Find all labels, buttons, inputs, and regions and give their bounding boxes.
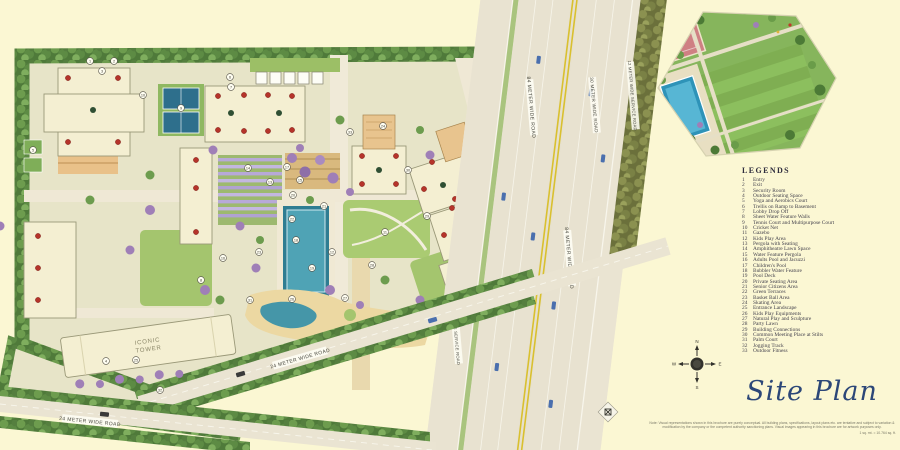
plan-marker: 12 xyxy=(329,249,336,256)
svg-text:2: 2 xyxy=(113,59,115,63)
plan-marker: 18 xyxy=(293,237,300,244)
plan-marker: 16 xyxy=(220,255,227,262)
plan-marker: 29 xyxy=(424,213,431,220)
trellis-row xyxy=(256,72,323,84)
svg-text:11: 11 xyxy=(383,230,387,234)
site-plan-canvas: 84 METER WIDE ROAD 84 METER WIDE ROAD 30… xyxy=(0,0,671,450)
svg-text:33: 33 xyxy=(348,130,352,134)
svg-text:17: 17 xyxy=(285,165,289,169)
plan-marker: 7 xyxy=(228,84,235,91)
svg-text:1: 1 xyxy=(89,59,91,63)
plan-marker: 32 xyxy=(157,387,164,394)
svg-text:22: 22 xyxy=(290,217,294,221)
plan-marker: 23 xyxy=(256,249,263,256)
plan-marker: 22 xyxy=(289,216,296,223)
svg-text:16: 16 xyxy=(221,256,225,260)
legend-item-number: 33 xyxy=(742,349,753,354)
svg-text:4: 4 xyxy=(105,359,107,363)
legend-title: LEGENDS xyxy=(742,166,898,175)
svg-text:29: 29 xyxy=(425,214,429,218)
plan-marker: 30 xyxy=(405,167,412,174)
plan-marker: 19 xyxy=(309,265,316,272)
compass-icon: N S W E xyxy=(672,339,722,390)
svg-text:27: 27 xyxy=(343,296,347,300)
unit-conversion: 1 sq. mt. = 10.764 sq. ft. xyxy=(648,431,896,435)
plan-marker: 26 xyxy=(289,296,296,303)
plan-marker: 15 xyxy=(297,177,304,184)
disclaimer-note: Note: Visual representations shown in th… xyxy=(648,421,896,430)
plan-marker: 2 xyxy=(111,58,118,65)
svg-text:31: 31 xyxy=(248,298,252,302)
plan-marker: 33 xyxy=(347,129,354,136)
plan-marker: 9 xyxy=(178,105,185,112)
legend-panel: LEGENDS 1Entry 2Exit 3Security Room 4Out… xyxy=(742,166,898,354)
svg-text:15: 15 xyxy=(298,178,302,182)
legend-item-label: Outdoor Fitness xyxy=(753,349,788,354)
plan-marker: 14 xyxy=(245,165,252,172)
water-feature-pergola xyxy=(285,153,340,189)
plan-marker: 31 xyxy=(247,297,254,304)
legend-item: 33Outdoor Fitness xyxy=(742,349,898,354)
plan-marker: 6 xyxy=(227,74,234,81)
compass-east-label: E xyxy=(718,362,721,367)
brochure-page: 84 METER WIDE ROAD 84 METER WIDE ROAD 30… xyxy=(0,0,900,450)
svg-text:7: 7 xyxy=(230,85,232,89)
compass-north-label: N xyxy=(695,339,698,344)
svg-text:6: 6 xyxy=(229,75,231,79)
svg-text:32: 32 xyxy=(158,388,162,392)
plan-marker: 11 xyxy=(382,229,389,236)
aerial-view-hexagon xyxy=(633,0,845,184)
svg-text:18: 18 xyxy=(294,238,298,242)
plan-marker: 17 xyxy=(284,164,291,171)
svg-text:13: 13 xyxy=(268,180,272,184)
plan-marker: 10 xyxy=(140,92,147,99)
compass-west-label: W xyxy=(672,362,677,367)
svg-text:25: 25 xyxy=(134,358,138,362)
svg-text:28: 28 xyxy=(370,263,374,267)
plan-marker: 3 xyxy=(99,68,106,75)
compass-south-label: S xyxy=(695,385,698,390)
plan-marker: 24 xyxy=(380,123,387,130)
legend-list: 1Entry 2Exit 3Security Room 4Outdoor Sea… xyxy=(742,178,898,354)
plan-marker: 5 xyxy=(30,147,37,154)
svg-text:5: 5 xyxy=(32,148,34,152)
svg-text:30: 30 xyxy=(406,168,410,172)
plan-marker: 21 xyxy=(321,203,328,210)
disclaimer: Note: Visual representations shown in th… xyxy=(648,421,896,435)
svg-text:23: 23 xyxy=(257,250,261,254)
plan-marker: 1 xyxy=(87,58,94,65)
svg-text:12: 12 xyxy=(330,250,334,254)
svg-text:10: 10 xyxy=(141,93,145,97)
plan-marker: 8 xyxy=(198,277,205,284)
plan-marker: 13 xyxy=(267,179,274,186)
tower-4 xyxy=(24,222,76,318)
svg-text:24: 24 xyxy=(381,124,385,128)
svg-text:20: 20 xyxy=(291,193,295,197)
page-title: Site Plan xyxy=(728,376,896,407)
plan-marker: 28 xyxy=(369,262,376,269)
svg-text:19: 19 xyxy=(310,266,314,270)
svg-text:26: 26 xyxy=(290,297,294,301)
svg-text:8: 8 xyxy=(200,278,202,282)
plan-marker: 4 xyxy=(103,358,110,365)
plan-marker: 20 xyxy=(290,192,297,199)
svg-text:14: 14 xyxy=(246,166,250,170)
plan-marker: 25 xyxy=(133,357,140,364)
svg-text:9: 9 xyxy=(180,106,182,110)
plan-marker: 27 xyxy=(342,295,349,302)
svg-text:3: 3 xyxy=(101,69,103,73)
svg-text:21: 21 xyxy=(322,204,326,208)
